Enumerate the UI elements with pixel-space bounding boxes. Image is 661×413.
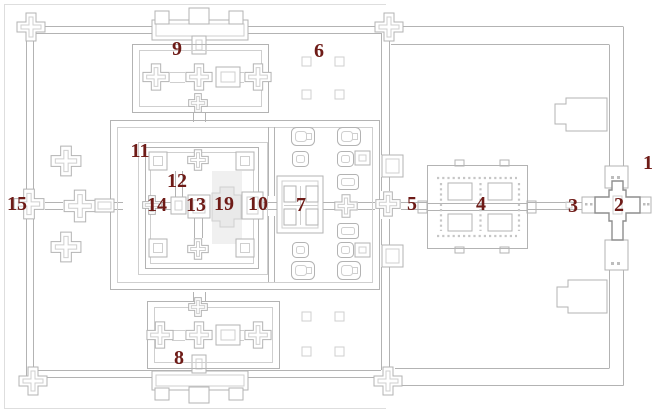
northeast-building [555, 98, 607, 131]
plan-label-7: 7 [296, 195, 306, 215]
plan-label-15: 15 [7, 194, 27, 214]
north-satellite-temple [133, 45, 272, 113]
column-bases-south [302, 312, 344, 356]
west-entrance-group [14, 146, 114, 262]
plan-label-8: 8 [174, 348, 184, 368]
plan-label-13: 13 [186, 195, 206, 215]
plan-label-3: 3 [568, 196, 578, 216]
plan-label-6: 6 [314, 41, 324, 61]
stupa-court [277, 128, 370, 280]
plan-label-2: 2 [614, 195, 624, 215]
plan-label-9: 9 [172, 39, 182, 59]
plan-label-11: 11 [131, 141, 150, 161]
column-bases-north [302, 57, 344, 99]
plan-label-4: 4 [476, 194, 486, 214]
north-gopura [152, 8, 248, 54]
temple-plan-drawing [0, 0, 661, 413]
plan-label-1: 1 [643, 153, 653, 173]
south-satellite-temple [147, 298, 280, 369]
plan-label-10: 10 [248, 194, 268, 214]
plan-label-19: 19 [214, 194, 234, 214]
plan-label-14: 14 [147, 195, 167, 215]
enclosure-walls [27, 27, 624, 386]
temple-plan: 12345678910111213141519 [0, 0, 661, 413]
east-entrance-gopura [566, 166, 651, 270]
plan-label-12: 12 [167, 171, 187, 191]
southeast-building [557, 280, 607, 313]
plan-label-5: 5 [407, 194, 417, 214]
